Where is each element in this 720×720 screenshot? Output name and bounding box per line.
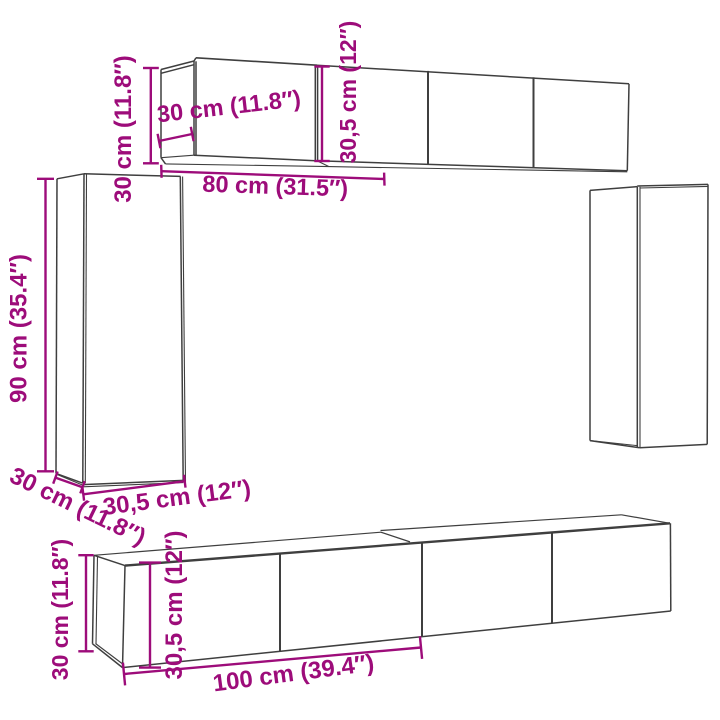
svg-text:80 cm (31.5″): 80 cm (31.5″) <box>202 171 349 202</box>
svg-text:30 cm (11.8″): 30 cm (11.8″) <box>110 55 137 203</box>
svg-text:90 cm (35.4″): 90 cm (35.4″) <box>6 254 33 403</box>
svg-text:30,5 cm (12″): 30,5 cm (12″) <box>335 21 361 164</box>
svg-text:30,5 cm (12″): 30,5 cm (12″) <box>161 531 188 680</box>
svg-text:30 cm (11.8″): 30 cm (11.8″) <box>47 539 73 680</box>
